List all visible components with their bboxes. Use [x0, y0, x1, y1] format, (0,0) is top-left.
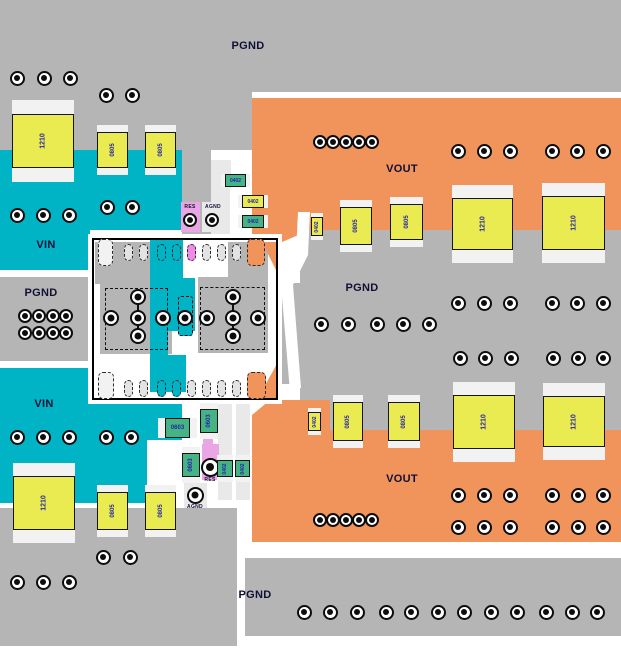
res-0402-topcenter-3-terminal-1 [238, 215, 243, 228]
ic-thermal-via-2-dot [135, 294, 142, 301]
cap-0805-bottomleft-2-terminal-2 [145, 529, 176, 537]
vias-pgnd-left-cluster-3-dot [50, 313, 56, 319]
vias-pgnd-bottomleft-4-dot [40, 579, 46, 585]
vias-pgnd-bottomleft-2 [123, 550, 138, 565]
vias-pgnd-bottomleft-5 [62, 575, 77, 590]
vias-pgnd-center-row5-3-dot [374, 321, 380, 327]
vias-pgnd-bottom-row-5-dot [408, 609, 414, 615]
vias-pgnd-bottom-row-2-dot [327, 609, 333, 615]
cap-0805-topright-1: 0805 [340, 200, 372, 252]
via-agnd-top-1 [205, 213, 219, 227]
vias-vout-top-row-3 [503, 144, 518, 159]
vias-pgnd-bottom-row-6 [431, 605, 446, 620]
vias-vout-top-row-6 [596, 144, 611, 159]
ic-thermal-via-3 [130, 310, 146, 326]
vias-pgnd-bottomleft-5-dot [66, 579, 72, 585]
vias-vin-bottom-1 [10, 430, 25, 445]
ic-thermal-via-4 [130, 328, 146, 344]
cap-0402-bottomright-terminal-2 [308, 430, 321, 435]
vias-vout-bottom-cluster-4-dot [356, 517, 362, 523]
vias-pgnd-center-upper-5-dot [574, 300, 580, 306]
route-strip-a [218, 390, 232, 500]
vias-pgnd-bottom-row-8-dot [488, 609, 494, 615]
res-0402-topcenter-1-terminal-1 [221, 174, 226, 187]
vias-pgnd-bottom-row-10-dot [543, 609, 549, 615]
vias-vout-bottom-cluster-3-dot [343, 517, 349, 523]
cap-0805-bottomright-2-terminal-2 [388, 440, 420, 448]
vias-vin-bottom-3-dot [66, 434, 72, 440]
label-agnd-bottom: AGND [187, 504, 203, 510]
via-agnd-bottom-1 [187, 487, 204, 504]
cap-1210-bottomright-2-size-label: 1210 [571, 414, 578, 430]
cap-0805-topleft-1-terminal-2 [97, 167, 128, 175]
label-res-top: RES [184, 204, 195, 210]
res-0402-topcenter-1-size-label: 0402 [230, 178, 241, 184]
cap-1210-bottomright-1: 1210 [453, 382, 515, 462]
ic-pad-bottom-8 [217, 380, 226, 397]
ic-pad-top-7 [202, 244, 211, 261]
vias-pgnd-center-row5-4-dot [400, 321, 406, 327]
cap-0402-topright-terminal-2 [311, 235, 323, 240]
vias-pgnd-bottom-row-12 [590, 605, 605, 620]
ic-pad-bottom-10 [247, 372, 266, 399]
cap-0805-bottomleft-1-terminal-2 [97, 529, 128, 537]
vias-pgnd-bottom-row-5 [404, 605, 419, 620]
res-0402-topcenter-3-size-label: 0402 [247, 219, 258, 225]
vias-vout-top-row-1-dot [455, 148, 461, 154]
vias-pgnd-bottom-row-6-dot [435, 609, 441, 615]
vias-pgnd-topleft-4 [99, 88, 114, 103]
ic-pad-top-5 [172, 244, 181, 261]
vias-vout-bottom-upper-1 [451, 488, 466, 503]
vias-vin-bottom-4 [99, 430, 114, 445]
cap-1210-topright-2: 1210 [542, 183, 605, 263]
vias-vout-top-row-2-dot [481, 148, 487, 154]
vias-vout-bottom-upper-5 [571, 488, 586, 503]
vias-pgnd-center-upper-3 [503, 296, 518, 311]
ic-thermal-via-7-dot [204, 315, 211, 322]
vias-vin-bottom-3 [62, 430, 77, 445]
vias-vout-bottom-upper-5-dot [575, 492, 581, 498]
ic-thermal-via-5-dot [160, 315, 167, 322]
cap-0805-bottomleft-2-terminal-1 [145, 485, 176, 493]
vias-pgnd-center-row5-1-dot [318, 321, 324, 327]
vias-vout-bottom-lower-5-dot [575, 524, 581, 530]
res-0603-center-h-terminal-1 [158, 418, 166, 438]
vias-vin-top-5-dot [129, 204, 135, 210]
vias-vout-top-cluster-3 [339, 135, 353, 149]
vias-pgnd-center-lower-1 [453, 351, 468, 366]
vias-vout-top-row-5-dot [574, 148, 580, 154]
label-vin-bottom: VIN [34, 398, 53, 410]
gnd-strip-bottom [245, 558, 621, 636]
vias-pgnd-left-cluster-8 [59, 326, 73, 340]
vias-vout-bottom-cluster-1-dot [317, 517, 323, 523]
vias-pgnd-center-upper-2 [477, 296, 492, 311]
vias-vout-top-cluster-1-dot [317, 139, 323, 145]
ic-pad-top-4 [157, 244, 166, 261]
vias-pgnd-center-upper-2-dot [481, 300, 487, 306]
vias-pgnd-topleft-3 [63, 71, 78, 86]
vias-pgnd-center-upper-4 [545, 296, 560, 311]
vias-pgnd-center-row5-4 [396, 317, 411, 332]
cap-1210-topleft-size-label: 1210 [40, 133, 47, 149]
vias-pgnd-left-cluster-5 [18, 326, 32, 340]
vias-pgnd-topleft-4-dot [103, 92, 109, 98]
vias-vout-top-cluster-3-dot [343, 139, 349, 145]
vias-pgnd-bottom-row-8 [484, 605, 499, 620]
cap-1210-bottomright-2-terminal-2 [543, 446, 605, 460]
cap-1210-topright-1-terminal-2 [452, 249, 513, 263]
vias-pgnd-bottomleft-4 [36, 575, 51, 590]
cap-0805-topright-2-terminal-2 [390, 239, 423, 247]
res-0603-center-h-terminal-2 [189, 418, 197, 438]
vias-vout-bottom-upper-6 [596, 488, 611, 503]
res-0603-center-v1-terminal-2 [200, 432, 218, 439]
res-0402-topcenter-3-terminal-2 [263, 215, 268, 228]
res-0402-center-2-terminal-1 [235, 455, 250, 461]
via-res-top-1 [183, 213, 197, 227]
vias-pgnd-bottom-row-1 [297, 605, 312, 620]
cap-1210-bottomleft-terminal-1 [13, 463, 75, 477]
cap-0805-topleft-2-terminal-1 [145, 125, 176, 133]
vias-pgnd-bottom-row-7-dot [461, 609, 467, 615]
vias-pgnd-center-lower-6-dot [600, 355, 606, 361]
vias-vout-bottom-lower-6 [596, 520, 611, 535]
ic-thermal-via-7 [199, 310, 215, 326]
res-0402-center-1-terminal-2 [217, 476, 233, 482]
vias-vin-bottom-1-dot [14, 434, 20, 440]
vias-vout-top-cluster-4-dot [356, 139, 362, 145]
cap-1210-bottomleft-terminal-2 [13, 529, 75, 543]
ic-thermal-via-6-dot [182, 315, 189, 322]
vias-pgnd-center-upper-1-dot [455, 300, 461, 306]
cap-0805-topright-2: 0805 [390, 197, 423, 247]
ic-pad-top-8 [217, 244, 226, 261]
cap-1210-topright-1-terminal-1 [452, 185, 513, 199]
cap-0402-topcenter-2-terminal-2 [263, 195, 268, 208]
vias-pgnd-bottom-row-9-dot [514, 609, 520, 615]
vias-pgnd-bottom-row-3-dot [354, 609, 360, 615]
ic-thermal-via-4-dot [135, 333, 142, 340]
vias-vout-bottom-lower-1-dot [455, 524, 461, 530]
cap-0805-topright-1-size-label: 0805 [353, 219, 359, 232]
cap-0805-bottomright-2-terminal-1 [388, 395, 420, 403]
vias-vin-top-3-dot [66, 212, 72, 218]
vias-pgnd-bottomleft-1 [96, 550, 111, 565]
res-0603-center-v2: 0603 [182, 447, 200, 483]
ic-pad-top-6 [187, 244, 196, 261]
ic-pad-top-1 [98, 239, 113, 266]
vias-pgnd-left-cluster-1 [18, 309, 32, 323]
cap-0402-bottomright-size-label: 0402 [312, 416, 318, 427]
cap-0805-bottomright-2-size-label: 0805 [401, 415, 407, 428]
ic-thermal-via-1-dot [108, 315, 115, 322]
vias-pgnd-center-upper-6 [596, 296, 611, 311]
res-0603-center-v2-terminal-2 [182, 476, 200, 483]
ic-thermal-via-5 [155, 310, 171, 326]
vias-vout-bottom-upper-2 [477, 488, 492, 503]
vias-pgnd-topleft-2-dot [41, 75, 47, 81]
vias-pgnd-bottom-row-4-dot [383, 609, 389, 615]
vias-pgnd-left-cluster-8-dot [63, 330, 69, 336]
vias-pgnd-left-cluster-2-dot [36, 313, 42, 319]
vias-pgnd-left-cluster-6 [32, 326, 46, 340]
cap-0402-topcenter-2-size-label: 0402 [247, 199, 258, 205]
vias-pgnd-left-cluster-5-dot [22, 330, 28, 336]
vias-pgnd-center-row5-3 [370, 317, 385, 332]
res-0603-center-v2-size-label: 0603 [188, 458, 194, 471]
vias-vin-bottom-2-dot [40, 434, 46, 440]
vias-pgnd-bottom-row-2 [323, 605, 338, 620]
via-agnd-top-1-dot [209, 217, 215, 223]
ic-pad-bottom-7 [202, 380, 211, 397]
ic-pad-bottom-9 [232, 380, 241, 397]
vias-pgnd-center-upper-4-dot [549, 300, 555, 306]
vias-vin-bottom-2 [36, 430, 51, 445]
vias-vout-top-cluster-4 [352, 135, 366, 149]
label-vout-top: VOUT [386, 163, 418, 175]
vias-vout-top-row-6-dot [600, 148, 606, 154]
route-strip-b [236, 390, 250, 500]
vias-vout-bottom-upper-1-dot [455, 492, 461, 498]
ic-thermal-via-8 [225, 289, 241, 305]
label-pgnd-top: PGND [232, 40, 265, 52]
cap-1210-topleft-terminal-2 [12, 167, 74, 182]
vias-pgnd-center-lower-1-dot [457, 355, 463, 361]
ic-thermal-via-9-dot [230, 315, 237, 322]
label-vout-bottom: VOUT [386, 473, 418, 485]
via-agnd-bottom-1-dot [192, 492, 199, 499]
res-0402-center-1-terminal-1 [217, 455, 233, 461]
vias-vout-bottom-cluster-5 [365, 513, 379, 527]
res-0402-center-1-size-label: 0402 [222, 463, 228, 474]
vias-vout-top-row-2 [477, 144, 492, 159]
vias-pgnd-center-lower-3-dot [508, 355, 514, 361]
vias-vin-bottom-4-dot [103, 434, 109, 440]
ic-pad-top-2 [124, 244, 133, 261]
pcb-board: 1210080508050402040204020402080508051210… [0, 0, 621, 657]
label-agnd-top: AGND [205, 204, 221, 210]
vias-vin-top-1 [10, 208, 25, 223]
vias-pgnd-center-row5-5-dot [426, 321, 432, 327]
vias-pgnd-left-cluster-7-dot [50, 330, 56, 336]
ic-thermal-via-3-dot [135, 315, 142, 322]
via-res-bottom-1-dot [206, 463, 214, 471]
vias-pgnd-center-lower-4-dot [550, 355, 556, 361]
cap-1210-bottomright-1-size-label: 1210 [481, 414, 488, 430]
cap-0805-topright-2-terminal-1 [390, 197, 423, 205]
cap-1210-bottomright-2: 1210 [543, 383, 605, 460]
vias-pgnd-topleft-5-dot [129, 92, 135, 98]
vias-vout-bottom-upper-4 [545, 488, 560, 503]
vias-pgnd-center-row5-1 [314, 317, 329, 332]
ic-pad-top-9 [232, 244, 241, 261]
vias-vout-top-cluster-2-dot [330, 139, 336, 145]
vias-vout-bottom-lower-2-dot [481, 524, 487, 530]
vias-vin-top-4-dot [104, 204, 110, 210]
res-0402-topcenter-3: 0402 [238, 215, 268, 228]
cap-0402-topright-size-label: 0402 [314, 221, 320, 232]
vias-vin-top-1-dot [14, 212, 20, 218]
label-res-bottom: RES [204, 477, 215, 483]
vias-pgnd-center-upper-3-dot [507, 300, 513, 306]
label-pgnd-bottom: PGND [239, 589, 272, 601]
label-pgnd-left: PGND [25, 287, 58, 299]
ic-pad-bottom-1 [98, 372, 114, 399]
cap-0805-bottomright-1-terminal-2 [333, 440, 363, 448]
res-0402-center-2-terminal-2 [235, 476, 250, 482]
cap-0805-bottomleft-2-size-label: 0805 [158, 504, 164, 517]
cap-0402-bottomright-terminal-1 [308, 408, 321, 413]
cap-0805-topleft-1-terminal-1 [97, 125, 128, 133]
cap-0805-bottomright-1-size-label: 0805 [345, 415, 351, 428]
vias-vin-top-2 [36, 208, 51, 223]
vias-pgnd-bottom-row-12-dot [594, 609, 600, 615]
vias-vout-bottom-cluster-5-dot [369, 517, 375, 523]
vias-pgnd-center-upper-1 [451, 296, 466, 311]
cap-0805-bottomleft-1-terminal-1 [97, 485, 128, 493]
cap-0805-bottomleft-1-size-label: 0805 [110, 504, 116, 517]
vias-vin-top-3 [62, 208, 77, 223]
vias-vout-top-cluster-5 [365, 135, 379, 149]
vias-pgnd-topleft-1-dot [14, 75, 20, 81]
vias-pgnd-topleft-1 [10, 71, 25, 86]
vias-vout-bottom-upper-6-dot [600, 492, 606, 498]
vias-vout-top-row-3-dot [507, 148, 513, 154]
vias-vout-bottom-lower-3-dot [507, 524, 513, 530]
cap-0402-topright: 0402 [311, 213, 323, 240]
cap-0805-topright-1-terminal-2 [340, 244, 372, 252]
vias-vout-bottom-upper-3 [503, 488, 518, 503]
vias-vout-bottom-cluster-3 [339, 513, 353, 527]
vias-vout-bottom-lower-6-dot [600, 524, 606, 530]
ic-pad-bottom-5 [172, 380, 181, 397]
ic-pad-bottom-6 [187, 380, 196, 397]
cap-0402-topright-terminal-1 [311, 213, 323, 218]
vias-vin-bottom-5-dot [128, 434, 134, 440]
cap-1210-topleft-terminal-1 [12, 100, 74, 115]
res-0603-center-h: 0603 [158, 418, 197, 438]
vias-vout-bottom-cluster-1 [313, 513, 327, 527]
vias-pgnd-center-lower-2 [478, 351, 493, 366]
ic-thermal-via-1 [103, 310, 119, 326]
vias-pgnd-center-upper-6-dot [600, 300, 606, 306]
ic-thermal-via-10-dot [230, 333, 237, 340]
vias-vin-top-5 [125, 200, 140, 215]
vias-vin-top-4 [100, 200, 115, 215]
vias-pgnd-center-row5-2-dot [345, 321, 351, 327]
res-0603-center-h-size-label: 0603 [171, 425, 184, 431]
vias-vout-top-cluster-1 [313, 135, 327, 149]
vias-pgnd-bottomleft-3 [10, 575, 25, 590]
vias-pgnd-bottom-row-1-dot [301, 609, 307, 615]
vias-pgnd-left-cluster-4 [59, 309, 73, 323]
vias-pgnd-center-upper-5 [570, 296, 585, 311]
vias-vout-top-cluster-2 [326, 135, 340, 149]
vias-vout-bottom-lower-4-dot [549, 524, 555, 530]
vias-vout-bottom-lower-2 [477, 520, 492, 535]
label-pgnd-center: PGND [346, 282, 379, 294]
cap-0805-bottomright-1-terminal-1 [333, 395, 363, 403]
cap-1210-topright-1-size-label: 1210 [479, 216, 486, 232]
vias-vout-bottom-cluster-4 [352, 513, 366, 527]
cap-1210-bottomright-1-terminal-1 [453, 382, 515, 396]
ic-thermal-via-10 [225, 328, 241, 344]
cap-1210-topright-2-terminal-1 [542, 183, 605, 197]
cap-1210-bottomleft: 1210 [13, 463, 75, 543]
ic-pad-bottom-3 [139, 380, 148, 397]
cap-0402-topcenter-2-terminal-1 [238, 195, 243, 208]
vias-vout-top-row-1 [451, 144, 466, 159]
cap-0805-topright-1-terminal-1 [340, 200, 372, 208]
res-0402-center-1: 0402 [217, 455, 233, 482]
cap-1210-topright-2-terminal-2 [542, 249, 605, 263]
label-vin-top: VIN [36, 239, 55, 251]
cap-1210-topleft: 1210 [12, 100, 74, 182]
cap-0805-topright-2-size-label: 0805 [404, 215, 410, 228]
vias-pgnd-left-cluster-2 [32, 309, 46, 323]
res-0603-center-v1: 0603 [200, 403, 218, 439]
vias-pgnd-topleft-2 [37, 71, 52, 86]
ic-thermal-via-8-dot [230, 294, 237, 301]
vias-vout-top-row-4-dot [549, 148, 555, 154]
ic-thermal-via-11 [250, 310, 266, 326]
res-0603-center-v1-terminal-1 [200, 403, 218, 410]
vias-pgnd-center-lower-3 [504, 351, 519, 366]
cap-0805-bottomleft-2: 0805 [145, 485, 176, 537]
vias-vout-top-cluster-5-dot [369, 139, 375, 145]
vias-pgnd-topleft-3-dot [67, 75, 73, 81]
vias-pgnd-bottom-row-11 [565, 605, 580, 620]
vias-pgnd-left-cluster-6-dot [36, 330, 42, 336]
vias-pgnd-center-lower-2-dot [482, 355, 488, 361]
vias-pgnd-left-cluster-4-dot [63, 313, 69, 319]
via-res-top-1-dot [187, 217, 193, 223]
res-0603-center-v2-terminal-1 [182, 447, 200, 454]
cap-1210-topright-1: 1210 [452, 185, 513, 263]
res-0402-topcenter-1-terminal-2 [245, 174, 250, 187]
vias-vin-top-2-dot [40, 212, 46, 218]
cap-0805-topleft-2: 0805 [145, 125, 176, 175]
vias-pgnd-bottom-row-3 [350, 605, 365, 620]
vias-vout-bottom-cluster-2-dot [330, 517, 336, 523]
vias-pgnd-bottomleft-1-dot [100, 554, 106, 560]
cap-1210-bottomright-1-terminal-2 [453, 448, 515, 462]
ic-pad-bottom-2 [124, 380, 133, 397]
vias-pgnd-center-lower-4 [546, 351, 561, 366]
cap-1210-bottomleft-size-label: 1210 [41, 495, 48, 511]
vias-vout-bottom-lower-5 [571, 520, 586, 535]
ic-thermal-via-2 [130, 289, 146, 305]
vias-pgnd-left-cluster-3 [46, 309, 60, 323]
vias-vout-bottom-cluster-2 [326, 513, 340, 527]
ic-pad-top-10 [247, 239, 265, 266]
vias-pgnd-bottom-row-11-dot [569, 609, 575, 615]
cap-0805-bottomleft-1: 0805 [97, 485, 128, 537]
vias-vout-bottom-lower-3 [503, 520, 518, 535]
ic-thermal-via-11-dot [255, 315, 262, 322]
cap-0402-topcenter-2: 0402 [238, 195, 268, 208]
vias-vout-bottom-upper-2-dot [481, 492, 487, 498]
vias-pgnd-left-cluster-1-dot [22, 313, 28, 319]
gnd-plane-top [0, 0, 621, 92]
cap-1210-bottomright-2-terminal-1 [543, 383, 605, 397]
res-0402-topcenter-1: 0402 [221, 174, 250, 187]
vias-pgnd-left-cluster-7 [46, 326, 60, 340]
vias-pgnd-bottom-row-9 [510, 605, 525, 620]
ic-pad-top-3 [139, 244, 148, 261]
